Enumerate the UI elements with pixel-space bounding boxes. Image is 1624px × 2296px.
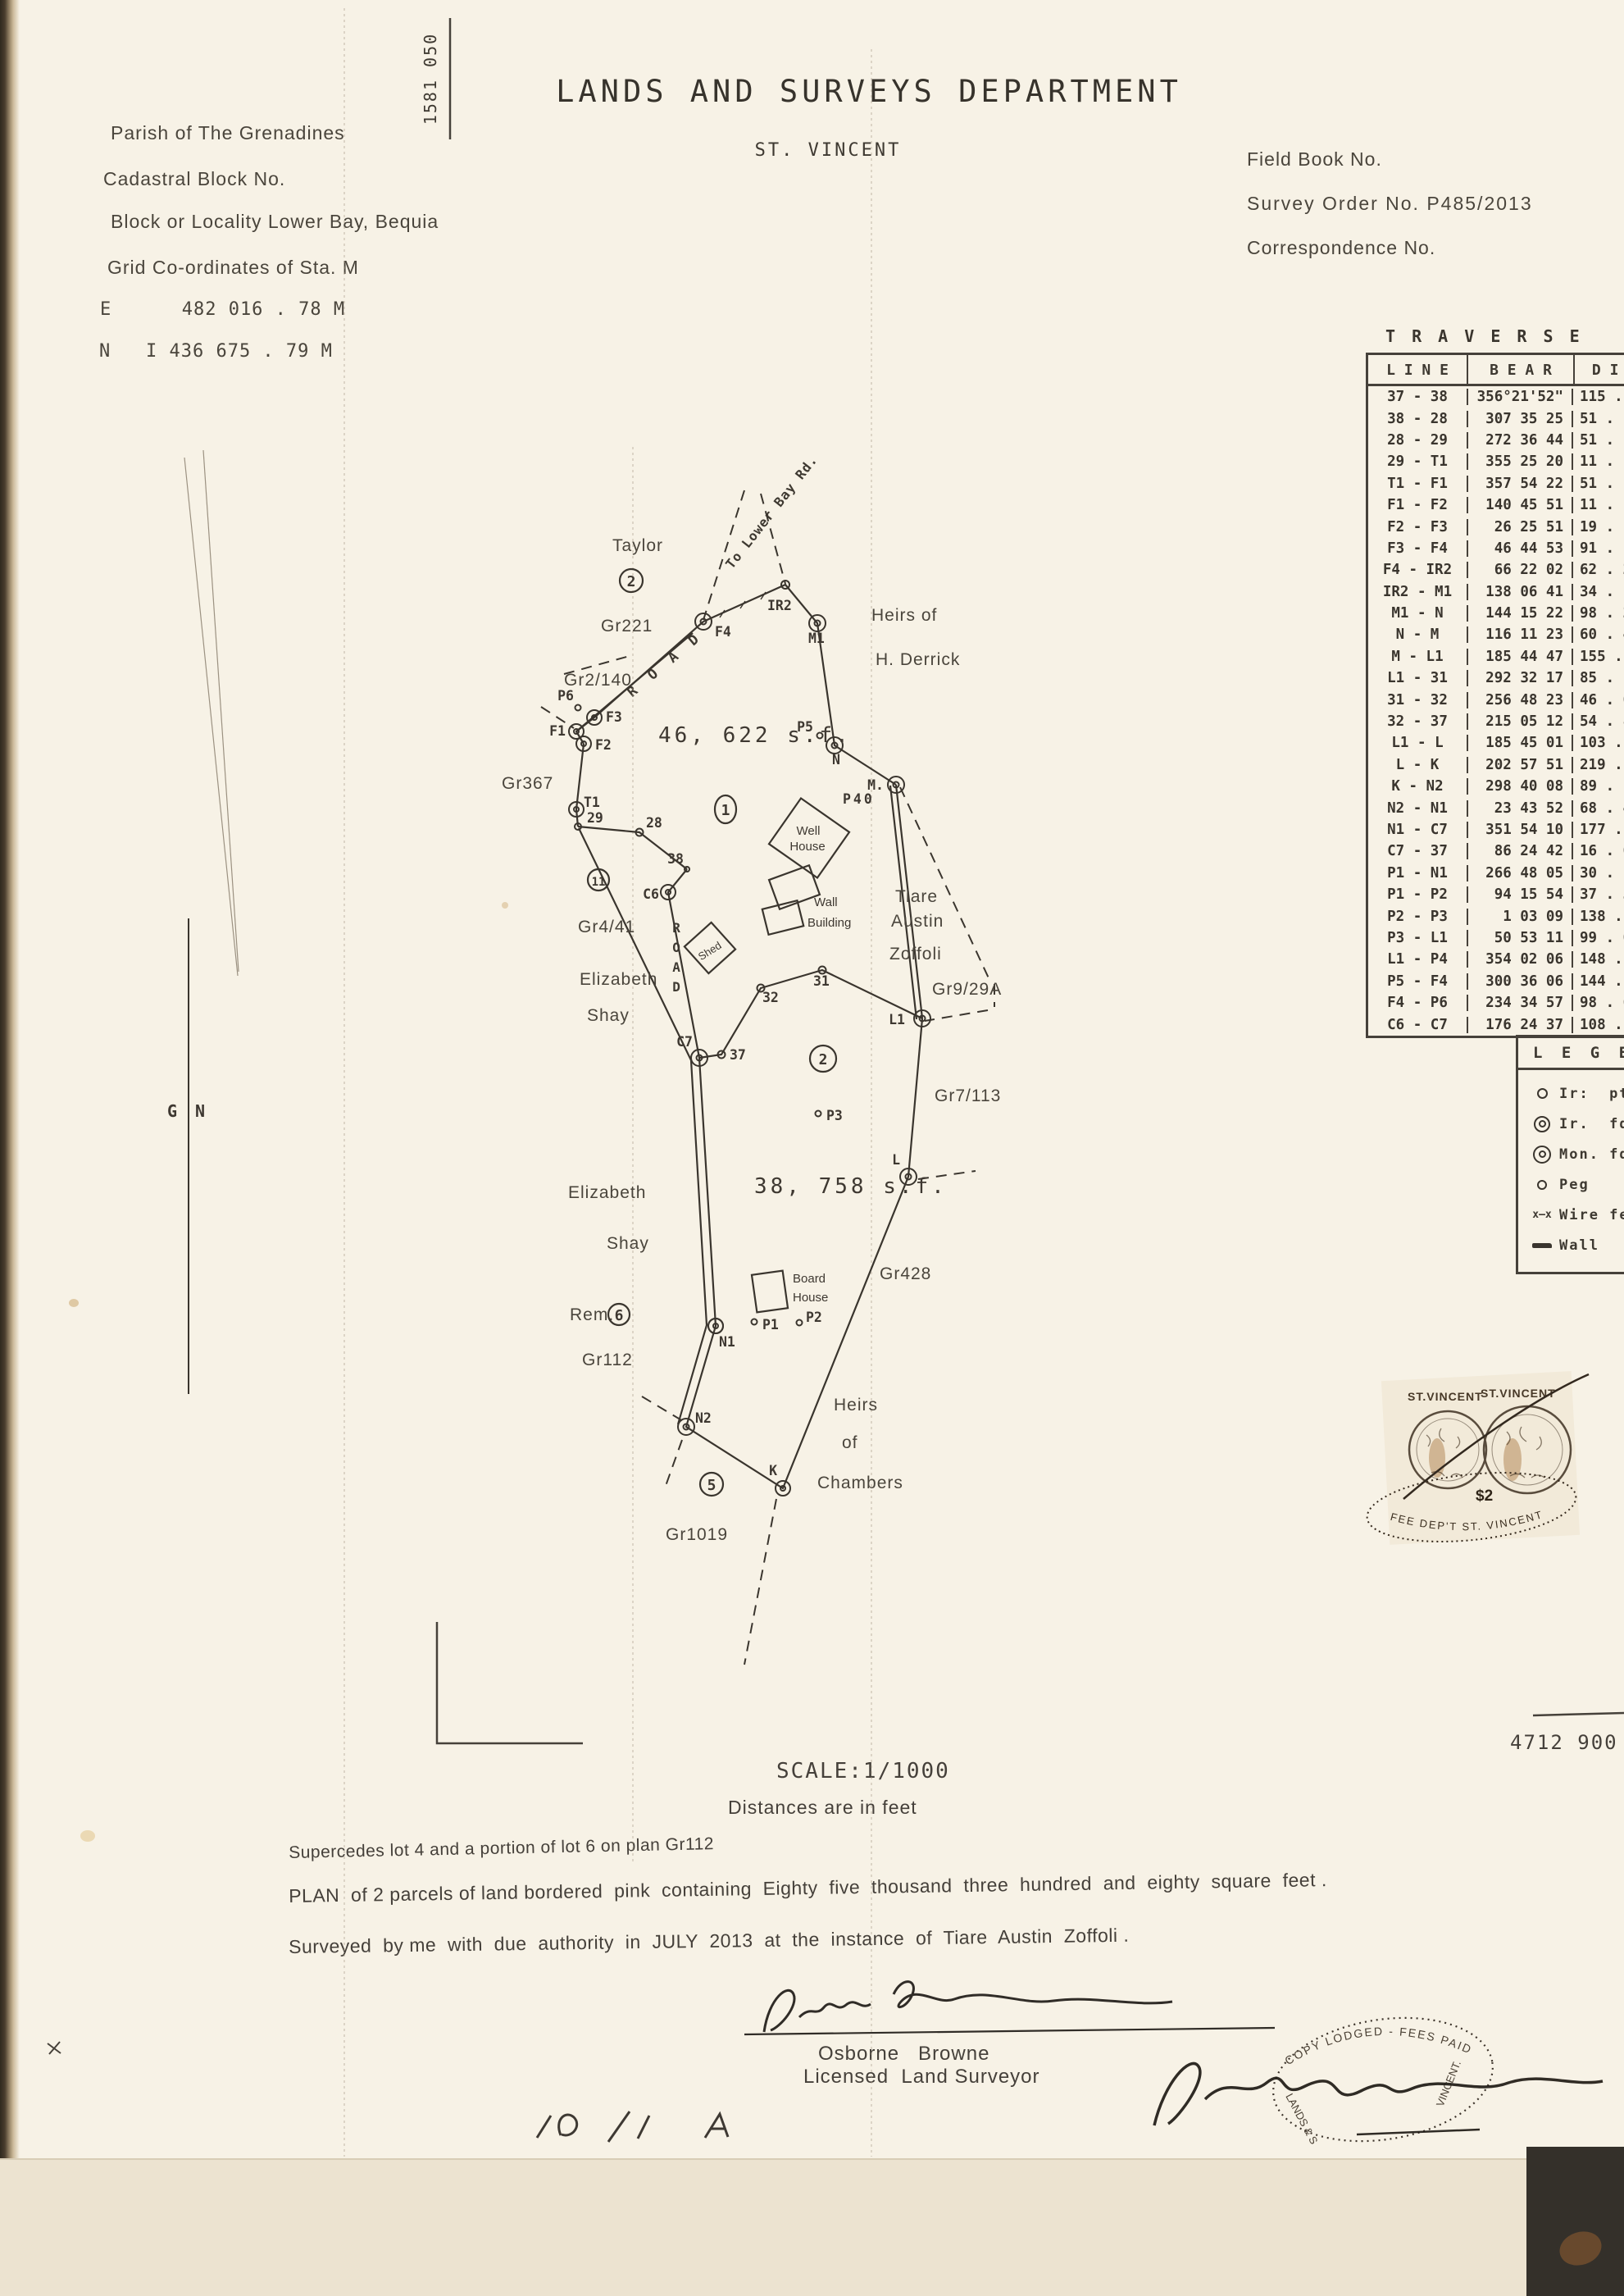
parcel-1-area: 46, 622 s.f.: [658, 723, 852, 748]
remainder-label: Rem.: [570, 1305, 614, 1324]
sheet-corner-marks: [48, 18, 1624, 2054]
station-t1: T1: [584, 795, 600, 810]
station-c7: C7: [676, 1034, 693, 1050]
adjacent-lot-5: 5: [707, 1477, 716, 1494]
board-house-outline: [752, 1271, 788, 1313]
plan-ref-gr428: Gr428: [880, 1264, 931, 1283]
station-37: 37: [730, 1047, 746, 1063]
station-k: K: [769, 1463, 777, 1478]
survey-plan-page: LANDS AND SURVEYS DEPARTMENT ST. VINCENT…: [0, 0, 1624, 2296]
station-n: N: [832, 752, 840, 768]
owner-heirs-of: Heirs of: [871, 606, 937, 625]
station-f4: F4: [715, 624, 731, 640]
surveyor-signature: [744, 1982, 1275, 2034]
owner-shay-2: Shay: [607, 1234, 649, 1253]
wall-building-label-1: Wall: [814, 895, 838, 909]
station-n1: N1: [719, 1334, 735, 1350]
parcel-2-area: 38, 758 s.f.: [754, 1174, 948, 1199]
plan-drawing: 1 2 2 11 6 5 F1 F2 F3 P6 F4 IR2 M1 N P5 …: [0, 0, 1624, 2296]
revenue-stamp-value: $2: [1476, 1487, 1493, 1505]
wall-building-outline-1: [769, 865, 820, 909]
lodged-stamp-top-text: COPY LODGED - FEES PAID: [1282, 2025, 1474, 2067]
owner-taylor: Taylor: [612, 536, 663, 555]
registrar-signature: [1154, 2064, 1603, 2134]
owner-tiare: Tiare: [895, 887, 938, 906]
owner-chambers: Chambers: [817, 1474, 903, 1492]
station-l: L: [892, 1152, 900, 1168]
adjacent-lot-11: 11: [592, 876, 606, 889]
owner-of: of: [842, 1433, 858, 1452]
station-m1: M1: [808, 631, 825, 646]
station-ir2: IR2: [767, 598, 792, 613]
owner-heirs: Heirs: [834, 1396, 878, 1414]
scan-crease-lines: [184, 450, 239, 976]
owner-elizabeth-2: Elizabeth: [568, 1183, 646, 1202]
plan-ref-gr112: Gr112: [582, 1351, 633, 1369]
lodged-stamp: COPY LODGED - FEES PAID LANDS & S VINCEN…: [1154, 2003, 1603, 2156]
revenue-stamp: ST.VINCENT ST.VINCENT $2 FEE DEP'T ST. V…: [1364, 1371, 1589, 1551]
station-p2: P2: [806, 1310, 822, 1325]
owner-h-derrick: H. Derrick: [876, 650, 960, 669]
adjacent-lot-6: 6: [615, 1307, 624, 1324]
well-house-label-1: Well: [797, 824, 821, 838]
wall-building-outline-2: [762, 900, 803, 935]
plan-text-labels: 46, 622 s.f. 38, 758 s.f. Taylor Gr221 G…: [167, 536, 1002, 1544]
parcel-2-number: 2: [819, 1051, 828, 1068]
station-l1: L1: [889, 1012, 905, 1027]
plan-ref-gr1019: Gr1019: [666, 1525, 728, 1544]
station-28: 28: [646, 815, 662, 831]
scan-fold-lines: [344, 8, 871, 2157]
grid-north-g: G: [167, 1101, 177, 1121]
wall-building-label-2: Building: [807, 916, 851, 930]
station-31: 31: [813, 973, 830, 989]
owner-austin: Austin: [891, 912, 944, 931]
station-f1: F1: [549, 723, 566, 739]
plan-ref-gr4-41: Gr4/41: [578, 918, 635, 936]
grid-north-n: N: [195, 1101, 205, 1121]
station-p1: P1: [762, 1317, 779, 1332]
owner-elizabeth-1: Elizabeth: [580, 970, 657, 989]
board-house-label-2: House: [793, 1291, 828, 1305]
plan-ref-gr221: Gr221: [601, 617, 653, 635]
plan-ref-gr7-113: Gr7/113: [935, 1086, 1001, 1105]
plan-ref-gr367: Gr367: [502, 774, 553, 793]
parcel-1-number: 1: [721, 802, 730, 819]
station-n2: N2: [695, 1410, 712, 1426]
plan-ref-p40: P40: [843, 791, 875, 807]
station-38: 38: [667, 851, 684, 867]
handwritten-note: [537, 2111, 728, 2142]
station-p3: P3: [826, 1108, 843, 1123]
station-29: 29: [587, 810, 603, 826]
plan-ref-gr2-140: Gr2/140: [564, 671, 632, 690]
station-f3: F3: [606, 709, 622, 725]
station-32: 32: [762, 990, 779, 1005]
station-p6: P6: [557, 688, 574, 704]
owner-shay-1: Shay: [587, 1006, 630, 1025]
well-house-label-2: House: [789, 840, 825, 854]
plan-ref-gr9-29a: Gr9/29A: [932, 980, 1002, 999]
adjacent-lot-2: 2: [627, 573, 636, 590]
revenue-stamp-country-1: ST.VINCENT: [1408, 1390, 1483, 1403]
station-c6: C6: [643, 886, 659, 902]
station-f2: F2: [595, 737, 612, 753]
board-house-label-1: Board: [793, 1272, 826, 1286]
shed-label: Shed: [696, 939, 724, 963]
lodged-stamp-left-text: LANDS & S: [1283, 2091, 1320, 2146]
owner-zoffoli: Zoffoli: [889, 945, 942, 963]
